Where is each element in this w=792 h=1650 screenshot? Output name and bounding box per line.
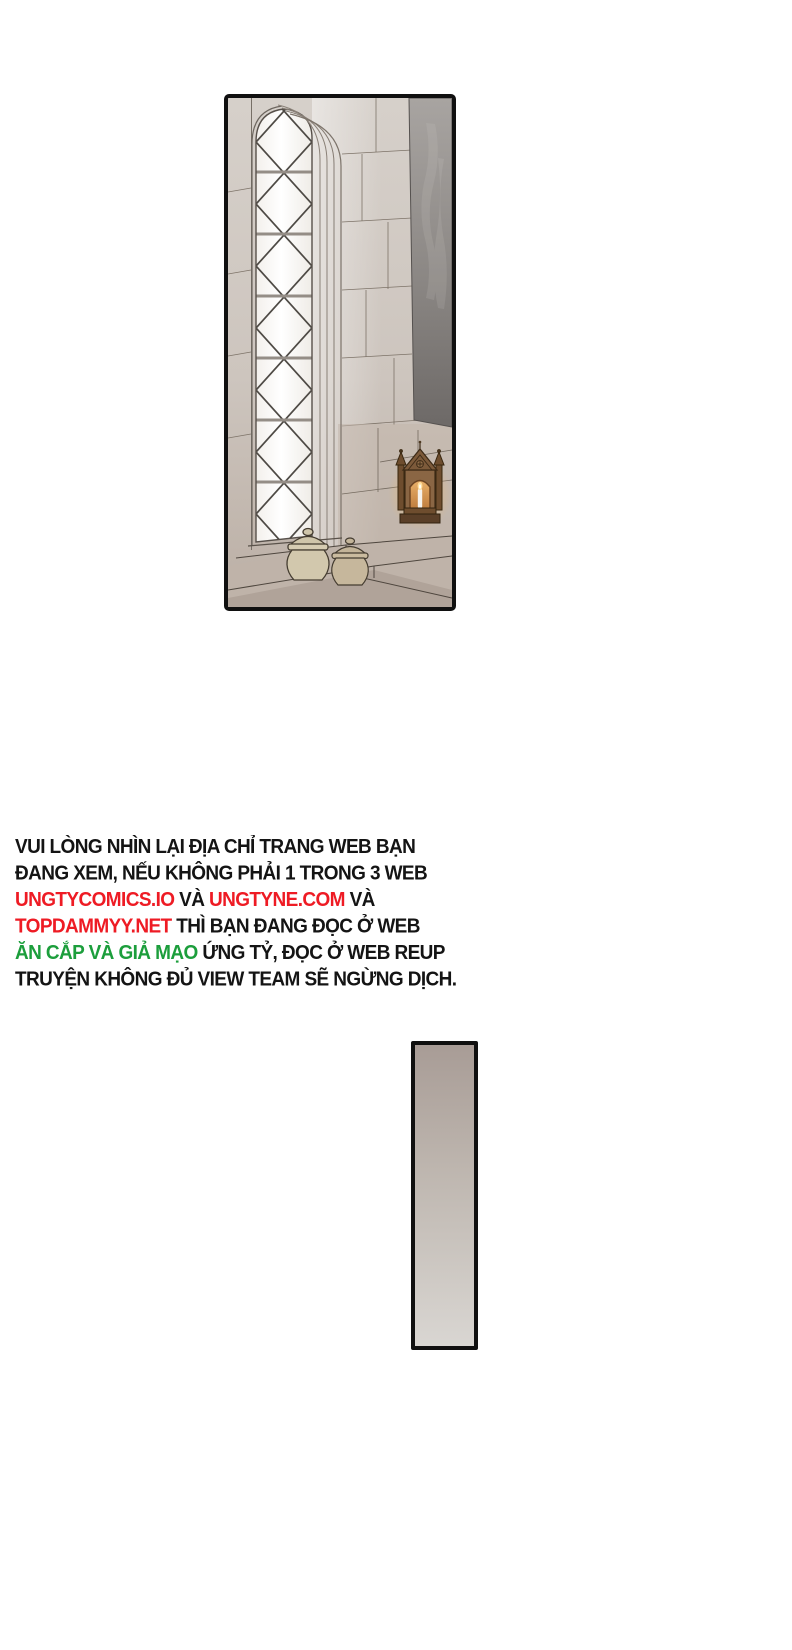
notice-segment: UNGTYCOMICS.IO	[15, 889, 174, 911]
notice-line: ĂN CẮP VÀ GIẢ MẠO ỨNG TỶ, ĐỌC Ở WEB REUP	[15, 940, 485, 967]
notice-segment: VÀ	[174, 889, 209, 911]
hanging-tapestry	[409, 98, 452, 427]
notice-segment: VÀ	[345, 889, 375, 911]
notice-line: TRUYỆN KHÔNG ĐỦ VIEW TEAM SẼ NGỪNG DỊCH.	[15, 967, 485, 994]
notice-segment: TOPDAMMYY.NET	[15, 916, 172, 938]
piracy-notice: VUI LÒNG NHÌN LẠI ĐỊA CHỈ TRANG WEB BẠNĐ…	[15, 834, 485, 993]
church-window-art	[228, 98, 452, 607]
comic-panel-gradient-bar	[411, 1041, 478, 1350]
notice-line: VUI LÒNG NHÌN LẠI ĐỊA CHỈ TRANG WEB BẠN	[15, 834, 485, 861]
notice-line: UNGTYCOMICS.IO VÀ UNGTYNE.COM VÀ	[15, 887, 485, 914]
diamond-lattice	[256, 109, 312, 542]
notice-segment: ĂN CẮP VÀ GIẢ MẠO	[15, 942, 198, 964]
comic-panel-window-scene	[224, 94, 456, 611]
notice-segment: THÌ BẠN ĐANG ĐỌC Ở WEB	[172, 916, 420, 938]
notice-segment: ĐANG XEM, NẾU KHÔNG PHẢI 1 TRONG 3 WEB	[15, 863, 427, 885]
notice-segment: ỨNG TỶ, ĐỌC Ở WEB REUP	[198, 942, 445, 964]
notice-line: ĐANG XEM, NẾU KHÔNG PHẢI 1 TRONG 3 WEB	[15, 861, 485, 888]
notice-segment: UNGTYNE.COM	[209, 889, 345, 911]
notice-line: TOPDAMMYY.NET THÌ BẠN ĐANG ĐỌC Ở WEB	[15, 914, 485, 941]
notice-segment: TRUYỆN KHÔNG ĐỦ VIEW TEAM SẼ NGỪNG DỊCH.	[15, 969, 456, 991]
notice-segment: VUI LÒNG NHÌN LẠI ĐỊA CHỈ TRANG WEB BẠN	[15, 836, 415, 858]
comic-page: VUI LÒNG NHÌN LẠI ĐỊA CHỈ TRANG WEB BẠNĐ…	[0, 0, 792, 1650]
